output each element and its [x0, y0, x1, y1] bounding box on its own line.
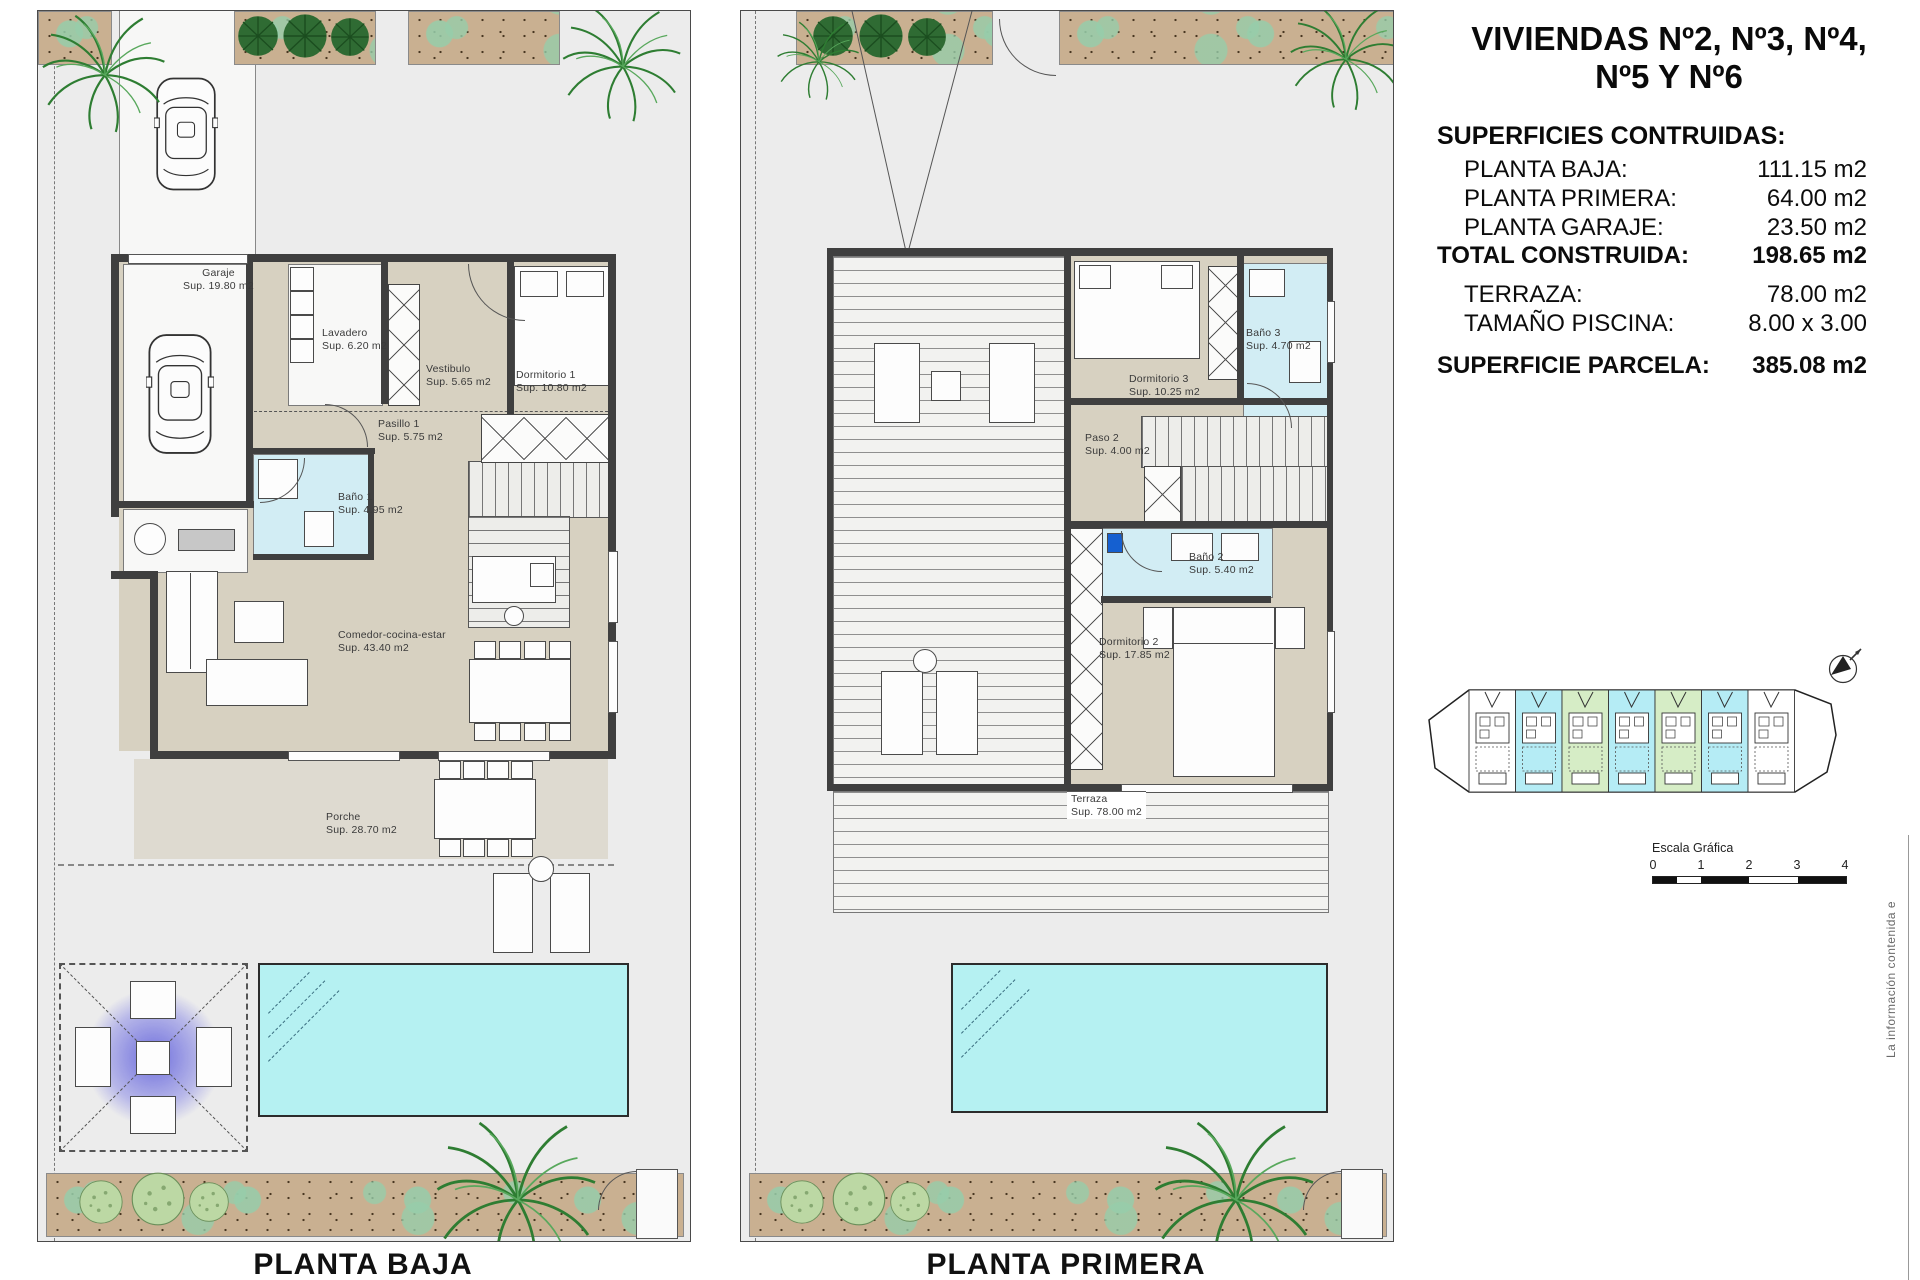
lounger — [493, 873, 533, 953]
chair — [499, 641, 521, 659]
window — [608, 641, 618, 713]
bush-icon — [329, 16, 371, 58]
chair — [487, 839, 509, 857]
washer — [290, 315, 314, 339]
pillow — [1079, 265, 1111, 289]
site-plan — [1425, 680, 1845, 805]
sofa-seat — [75, 1027, 111, 1087]
pillow — [1161, 265, 1193, 289]
ceiling-dashed-line — [254, 411, 608, 412]
page-title: VIVIENDAS Nº2, Nº3, Nº4, Nº5 Y Nº6 — [1428, 20, 1910, 96]
lounger — [874, 343, 920, 423]
room-label-bano2: Baño 2Sup. 5.40 m2 — [1189, 551, 1254, 576]
room-label-garaje: GarajeSup. 19.80 m2 — [183, 267, 254, 292]
counter-unit — [290, 267, 314, 291]
scale-segment — [1798, 877, 1846, 883]
room-label-bano3: Baño 3Sup. 4.70 m2 — [1246, 327, 1311, 352]
sofa-seat — [196, 1027, 232, 1087]
window — [1327, 631, 1335, 713]
dining-table — [469, 659, 571, 723]
garage-door — [128, 254, 248, 264]
toilet — [304, 511, 334, 547]
pool-steps — [268, 980, 325, 1037]
scale-tick: 2 — [1741, 858, 1757, 872]
scale-tick: 0 — [1645, 858, 1661, 872]
page-title-line1: VIVIENDAS Nº2, Nº3, Nº4, — [1428, 20, 1910, 58]
scale-bar-label: Escala Gráfica — [1652, 841, 1733, 855]
surface-row: TERRAZA: 78.00 m2 — [1437, 281, 1867, 309]
sofa-line — [190, 573, 191, 669]
room-label-bano1: Baño 1Sup. 4.95 m2 — [338, 491, 403, 516]
pillow — [566, 271, 604, 297]
side-table — [931, 371, 961, 401]
room-label-porche: PorcheSup. 28.70 m2 — [326, 811, 397, 836]
stair-hatch — [481, 414, 610, 463]
pool — [951, 963, 1328, 1113]
scale-bar — [1652, 876, 1847, 884]
window — [1327, 301, 1335, 363]
surface-row: PLANTA GARAJE: 23.50 m2 — [1437, 214, 1867, 242]
lounger — [989, 343, 1035, 423]
gate — [636, 1169, 678, 1239]
frame-line — [1908, 835, 1909, 1280]
legend-box — [178, 529, 235, 551]
chair — [549, 723, 571, 741]
chair — [511, 839, 533, 857]
seat — [130, 1096, 176, 1134]
scale-segment — [1653, 877, 1677, 883]
closet-hatch — [1069, 528, 1103, 770]
stairs — [1141, 416, 1333, 468]
wall — [1237, 256, 1244, 405]
stairs — [468, 461, 610, 518]
coffee-table — [234, 601, 284, 643]
dryer — [290, 339, 314, 363]
chair — [499, 723, 521, 741]
wall — [827, 248, 833, 791]
chair — [511, 761, 533, 779]
window — [288, 751, 400, 761]
room-label-paso2: Paso 2Sup. 4.00 m2 — [1085, 432, 1150, 457]
chair — [487, 761, 509, 779]
plan-title-baja: PLANTA BAJA — [37, 1248, 689, 1280]
boundary-dashdot-line — [755, 11, 756, 1241]
garden-strip — [408, 11, 560, 65]
room-label-dormitorio1: Dormitorio 1Sup. 10.80 m2 — [516, 369, 587, 394]
bush-icon — [889, 1181, 931, 1223]
plot-planta-baja: GarajeSup. 19.80 m2 LavaderoSup. 6.20 m2… — [37, 10, 691, 1242]
nightstand — [1275, 607, 1305, 649]
wall — [827, 248, 1333, 256]
room-label-pasillo1: Pasillo 1Sup. 5.75 m2 — [378, 418, 443, 443]
chair — [439, 839, 461, 857]
closet-hatch — [388, 284, 420, 406]
bed-line — [1173, 643, 1273, 644]
chair — [524, 641, 546, 659]
scale-tick: 4 — [1837, 858, 1853, 872]
stair-mark — [504, 606, 524, 626]
room-label-comedor: Comedor-cocina-estarSup. 43.40 m2 — [338, 629, 446, 654]
boiler-icon — [134, 523, 166, 555]
window — [608, 551, 618, 623]
sofa — [206, 659, 308, 706]
surface-row: PLANTA PRIMERA: 64.00 m2 — [1437, 185, 1867, 213]
page-title-line2: Nº5 Y Nº6 — [1428, 58, 1910, 96]
chair — [474, 641, 496, 659]
counter-unit — [290, 291, 314, 315]
surface-row-parcel: SUPERFICIE PARCELA: 385.08 m2 — [1437, 352, 1867, 380]
palm-icon — [1281, 10, 1394, 117]
chair — [524, 723, 546, 741]
chair — [439, 761, 461, 779]
bush-icon — [78, 1179, 124, 1225]
scale-segment — [1701, 877, 1749, 883]
chair — [463, 839, 485, 857]
room-label-terraza: TerrazaSup. 78.00 m2 — [1067, 791, 1146, 819]
bed — [1173, 607, 1275, 777]
plan-title-primera: PLANTA PRIMERA — [740, 1248, 1392, 1280]
surface-row: PLANTA BAJA: 111.15 m2 — [1437, 156, 1867, 184]
lounger — [550, 873, 590, 953]
surface-row-total: TOTAL CONSTRUIDA: 198.65 m2 — [1437, 242, 1867, 270]
wall — [111, 501, 254, 508]
wall — [1064, 521, 1333, 528]
gate — [1341, 1169, 1383, 1239]
surface-row: TAMAÑO PISCINA: 8.00 x 3.00 — [1437, 310, 1867, 338]
pool — [258, 963, 629, 1117]
pergola-seating — [59, 963, 248, 1152]
palm-icon — [543, 10, 691, 129]
wall — [253, 448, 375, 454]
room-label-dormitorio3: Dormitorio 3Sup. 10.25 m2 — [1129, 373, 1200, 398]
sink — [1249, 269, 1285, 297]
pool-steps — [961, 979, 1015, 1033]
stair-hatch — [1144, 466, 1181, 523]
porch-floor — [134, 759, 608, 859]
bush-icon — [779, 1179, 825, 1225]
porch-table — [434, 779, 536, 839]
chair — [549, 641, 571, 659]
bush-icon — [130, 1171, 186, 1227]
plot-planta-primera: Dormitorio 3Sup. 10.25 m2 Baño 3Sup. 4.7… — [740, 10, 1394, 1242]
wall — [150, 571, 158, 759]
pillow — [520, 271, 558, 297]
pool-steps — [268, 972, 310, 1014]
palm-icon — [769, 15, 869, 105]
round-table — [913, 649, 937, 673]
palm-icon — [423, 1109, 613, 1242]
chair — [463, 761, 485, 779]
car-icon — [146, 294, 214, 494]
chair — [474, 723, 496, 741]
sofa — [166, 571, 218, 673]
side-note: La información contenida e — [1884, 838, 1898, 1058]
stairs — [1181, 466, 1333, 523]
bush-icon — [236, 14, 280, 58]
sheet: GarajeSup. 19.80 m2 LavaderoSup. 6.20 m2… — [0, 0, 1920, 1280]
lounger — [936, 671, 978, 755]
bush-icon — [281, 12, 329, 60]
surfaces-heading: SUPERFICIES CONTRUIDAS: — [1437, 122, 1786, 151]
room-label-vestibulo: VestibuloSup. 5.65 m2 — [426, 363, 491, 388]
palm-icon — [37, 10, 180, 140]
scale-tick: 3 — [1789, 858, 1805, 872]
bush-icon — [188, 1181, 230, 1223]
center-table — [136, 1041, 170, 1075]
bush-icon — [831, 1171, 887, 1227]
boundary-dashdot-line — [54, 11, 55, 1241]
sink — [530, 563, 554, 587]
window — [1121, 784, 1293, 793]
round-table — [528, 856, 554, 882]
pool-steps — [961, 970, 1001, 1010]
wall — [1064, 398, 1333, 405]
room-label-dormitorio2: Dormitorio 2Sup. 17.85 m2 — [1099, 636, 1170, 661]
wall — [253, 554, 374, 560]
scale-tick: 1 — [1693, 858, 1709, 872]
lounger — [881, 671, 923, 755]
window — [438, 751, 550, 761]
palm-icon — [1141, 1109, 1331, 1242]
wall — [111, 254, 119, 517]
wall — [1101, 596, 1271, 603]
room-label-lavadero: LavaderoSup. 6.20 m2 — [322, 327, 387, 352]
seat — [130, 981, 176, 1019]
